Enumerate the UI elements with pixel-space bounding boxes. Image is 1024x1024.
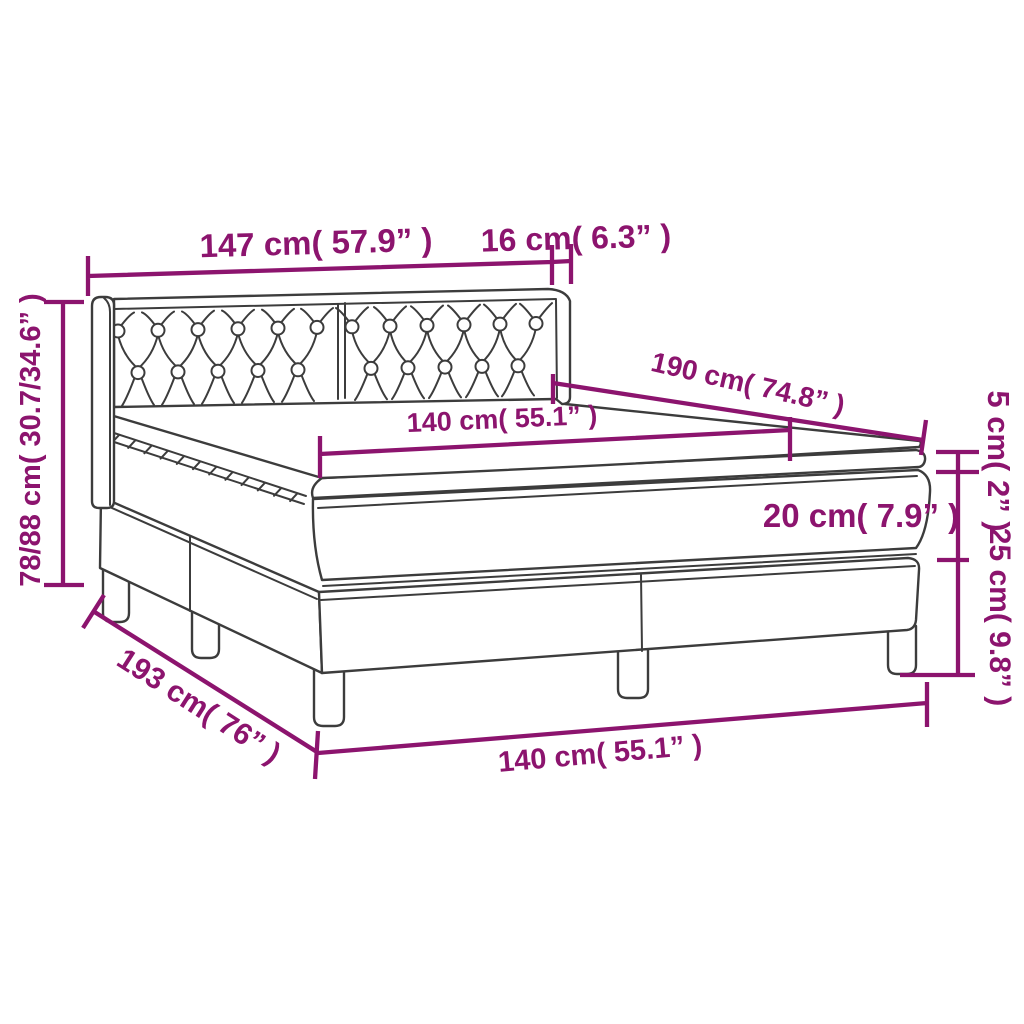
label-topper-height: 5 cm( 2” )	[981, 390, 1016, 531]
tuft-button	[421, 319, 434, 332]
diagram-svg: 147 cm( 57.9” ) 16 cm( 6.3” ) 190 cm( 74…	[0, 0, 1024, 1024]
tuft-button	[346, 320, 359, 333]
label-total-height: 78/88 cm( 30.7/34.6” )	[15, 293, 47, 586]
label-mattress-height: 20 cm( 7.9” )	[763, 497, 959, 534]
tuft-button	[152, 324, 165, 337]
tuft-button	[365, 362, 378, 375]
tuft-button	[132, 366, 145, 379]
bed-leg	[618, 647, 648, 698]
label-headboard-width: 147 cm( 57.9” )	[199, 221, 433, 264]
tuft-button	[292, 363, 305, 376]
tuft-button	[402, 361, 415, 374]
tuft-button	[212, 365, 225, 378]
label-bed-length: 190 cm( 74.8” )	[648, 346, 848, 421]
dim-left-vertical-line	[44, 302, 84, 585]
label-base-height: 25 cm( 9.8” )	[983, 528, 1016, 706]
tuft-button	[252, 364, 265, 377]
tuft-button	[494, 318, 507, 331]
tuft-button	[530, 317, 543, 330]
tuft-button	[384, 320, 397, 333]
label-base-length: 193 cm( 76” )	[111, 642, 286, 770]
tuft-button	[476, 360, 489, 373]
label-headboard-depth: 16 cm( 6.3” )	[480, 217, 671, 258]
tuft-button	[311, 321, 324, 334]
tuft-button	[458, 318, 471, 331]
tuft-button	[512, 359, 525, 372]
tuft-button	[192, 323, 205, 336]
bed-leg	[314, 669, 344, 726]
tuft-button	[172, 365, 185, 378]
tuft-button	[232, 322, 245, 335]
tuft-button	[272, 322, 285, 335]
bed-leg	[888, 626, 916, 674]
tuft-button	[439, 361, 452, 374]
dimension-diagram: 147 cm( 57.9” ) 16 cm( 6.3” ) 190 cm( 74…	[0, 0, 1024, 1024]
base-front-seam	[641, 575, 642, 651]
